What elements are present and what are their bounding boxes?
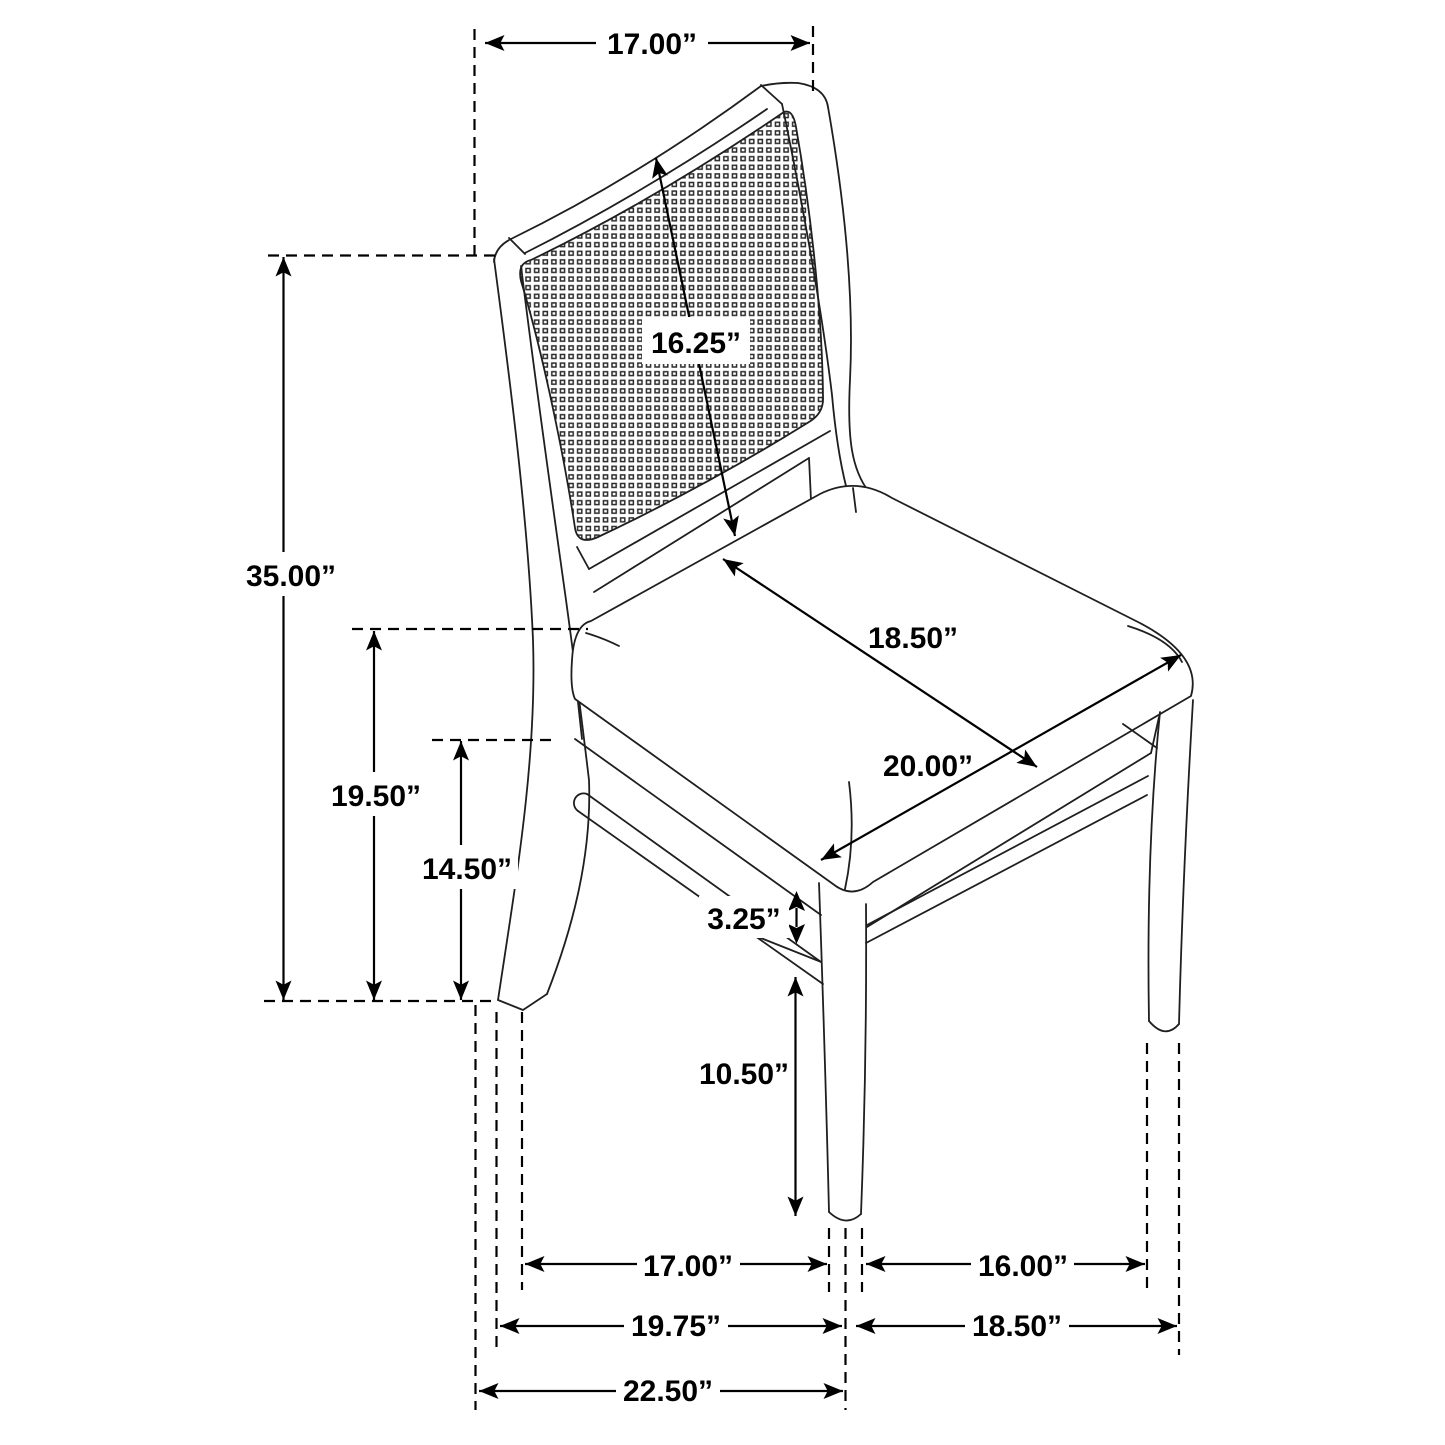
svg-text:17.00”: 17.00”	[607, 28, 697, 61]
svg-text:20.00”: 20.00”	[883, 750, 973, 783]
svg-text:18.50”: 18.50”	[868, 622, 958, 655]
svg-text:3.25”: 3.25”	[707, 903, 780, 936]
svg-text:16.25”: 16.25”	[651, 327, 741, 360]
svg-text:35.00”: 35.00”	[246, 560, 336, 593]
svg-text:16.00”: 16.00”	[978, 1250, 1068, 1283]
svg-text:19.50”: 19.50”	[331, 780, 421, 813]
svg-text:10.50”: 10.50”	[699, 1058, 789, 1091]
svg-text:17.00”: 17.00”	[643, 1250, 733, 1283]
svg-text:22.50”: 22.50”	[623, 1375, 713, 1408]
svg-text:18.50”: 18.50”	[972, 1310, 1062, 1343]
svg-text:19.75”: 19.75”	[631, 1310, 721, 1343]
svg-text:14.50”: 14.50”	[422, 853, 512, 886]
